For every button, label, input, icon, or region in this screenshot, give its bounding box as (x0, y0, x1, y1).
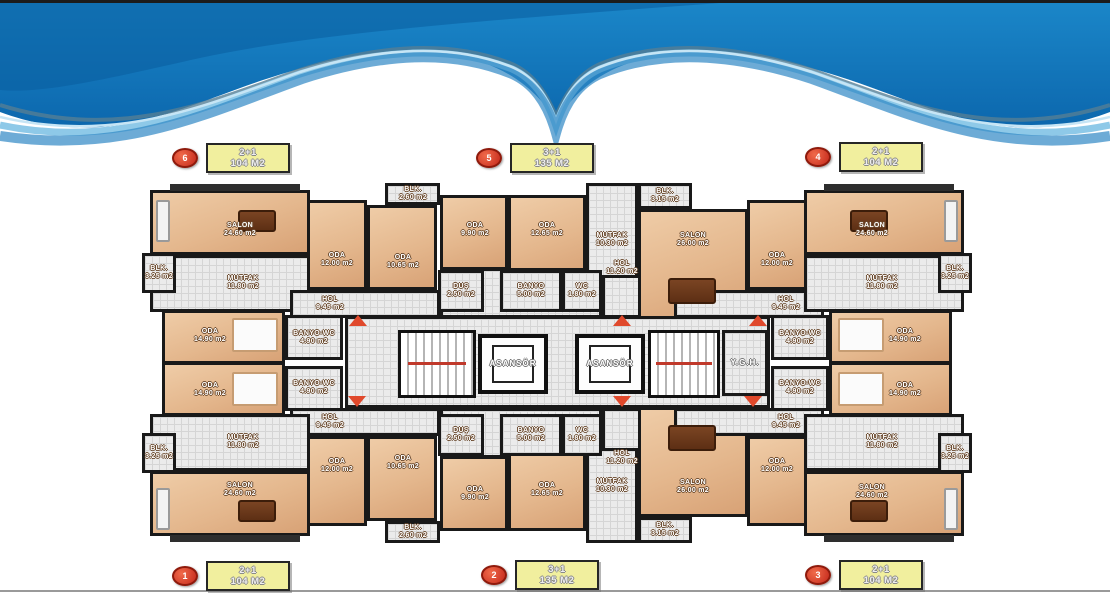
unit-number-badge: 4 (805, 147, 831, 167)
room-label: BANYO5.00 m2 (517, 283, 545, 299)
room-bedroom (747, 200, 807, 290)
unit-marker-2: 2 3+1135 M2 (481, 560, 599, 590)
room-label: MUTFAK11.80 m2 (227, 434, 259, 450)
entrance-arrow-icon (613, 315, 631, 326)
room-label: SALON24.60 m2 (856, 222, 888, 238)
furniture-sofa (944, 200, 958, 242)
floor-plan-page: SALON24.60 m2 MUTFAK11.80 m2 BLK.3.25 m2… (0, 0, 1110, 600)
room-label: BLK.3.25 m2 (941, 445, 969, 461)
entrance-arrow-icon (613, 396, 631, 407)
unit-tag: 3+1135 M2 (515, 560, 599, 590)
entrance-arrow-icon (348, 396, 366, 407)
unit-tag: 3+1135 M2 (510, 143, 594, 173)
room-label: SALON26.00 m2 (677, 479, 709, 495)
room-bedroom (307, 200, 367, 290)
room-label: DUŞ2.50 m2 (447, 427, 475, 443)
room-label: BLK.3.25 m2 (145, 265, 173, 281)
entrance-arrow-icon (744, 396, 762, 407)
terrace-strip (824, 184, 954, 191)
entrance-arrow-icon (749, 315, 767, 326)
room-label: BLK.3.15 m2 (651, 188, 679, 204)
elevator-label: ASANSÖR (586, 360, 633, 368)
room-label: BANYO-WC4.90 m2 (779, 380, 821, 396)
room-label: SALON24.60 m2 (224, 482, 256, 498)
room-label: BANYO-WC4.90 m2 (779, 330, 821, 346)
room-label: DUŞ2.50 m2 (447, 283, 475, 299)
room-label: MUTFAK10.30 m2 (596, 232, 628, 248)
room-label: WC1.80 m2 (568, 283, 596, 299)
stair-hall-label: Y.G.H. (730, 359, 759, 367)
bottom-divider-line (0, 590, 1110, 592)
room-label: HOL9.45 m2 (316, 296, 344, 312)
room-label: SALON26.00 m2 (677, 232, 709, 248)
room-label: ODA12.00 m2 (321, 252, 353, 268)
furniture-table (668, 278, 716, 304)
room-label: WC1.80 m2 (568, 427, 596, 443)
furniture-bed (232, 318, 278, 352)
unit-tag: 2+1104 M2 (206, 561, 290, 591)
room-label: HOL9.45 m2 (772, 296, 800, 312)
unit-marker-1: 1 2+1104 M2 (172, 561, 290, 591)
room-salon (150, 471, 310, 536)
room-label: ODA12.65 m2 (531, 482, 563, 498)
unit-number-badge: 6 (172, 148, 198, 168)
room-label: MUTFAK11.80 m2 (866, 275, 898, 291)
room-label: BLK.3.25 m2 (941, 265, 969, 281)
terrace-strip (824, 535, 954, 542)
room-label: BLK.2.60 m2 (399, 186, 427, 202)
furniture-bed (838, 318, 884, 352)
unit-number-badge: 1 (172, 566, 198, 586)
room-label: BLK.2.60 m2 (399, 524, 427, 540)
elevator-label: ASANSÖR (489, 360, 536, 368)
room-bedroom (747, 436, 807, 526)
furniture-table (668, 425, 716, 451)
room-label: HOL9.45 m2 (316, 414, 344, 430)
entrance-arrow-icon (349, 315, 367, 326)
furniture-bed (838, 372, 884, 406)
unit-marker-5: 5 3+1135 M2 (476, 143, 594, 173)
room-label: ODA10.65 m2 (387, 254, 419, 270)
room-label: ODA12.00 m2 (321, 458, 353, 474)
room-label: ODA12.00 m2 (761, 252, 793, 268)
room-label: HOL9.45 m2 (772, 414, 800, 430)
room-label: ODA14.90 m2 (194, 382, 226, 398)
blue-wave-banner (0, 0, 1110, 152)
unit-number-badge: 5 (476, 148, 502, 168)
room-label: ODA9.90 m2 (461, 486, 489, 502)
hallway (290, 290, 440, 318)
furniture-sofa (156, 488, 170, 530)
stair-rail (656, 362, 712, 365)
room-label: BLK.3.15 m2 (651, 522, 679, 538)
unit-marker-6: 6 2+1104 M2 (172, 143, 290, 173)
terrace-strip (170, 535, 300, 542)
room-label: SALON24.60 m2 (224, 222, 256, 238)
unit-tag: 2+1104 M2 (839, 560, 923, 590)
room-label: MUTFAK11.80 m2 (866, 434, 898, 450)
furniture-table (850, 500, 888, 522)
hallway (290, 408, 440, 436)
unit-tag: 2+1104 M2 (206, 143, 290, 173)
furniture-sofa (944, 488, 958, 530)
room-bedroom (367, 436, 437, 521)
furniture-table (238, 500, 276, 522)
room-label: MUTFAK10.30 m2 (596, 478, 628, 494)
furniture-bed (232, 372, 278, 406)
room-label: ODA14.90 m2 (194, 328, 226, 344)
room-label: MUTFAK11.80 m2 (227, 275, 259, 291)
stair-rail (408, 362, 466, 365)
room-label: HOL11.20 m2 (606, 260, 638, 276)
room-label: ODA9.90 m2 (461, 222, 489, 238)
room-label: SALON24.60 m2 (856, 484, 888, 500)
unit-marker-3: 3 2+1104 M2 (805, 560, 923, 590)
room-label: ODA14.90 m2 (889, 328, 921, 344)
room-label: BANYO-WC4.90 m2 (293, 330, 335, 346)
room-label: BANYO-WC4.90 m2 (293, 380, 335, 396)
unit-number-badge: 2 (481, 565, 507, 585)
room-bedroom (307, 436, 367, 526)
room-label: BANYO5.00 m2 (517, 427, 545, 443)
room-label: BLK.3.25 m2 (145, 445, 173, 461)
room-label: ODA12.00 m2 (761, 458, 793, 474)
unit-tag: 2+1104 M2 (839, 142, 923, 172)
room-label: HOL11.20 m2 (606, 450, 638, 466)
room-label: ODA12.65 m2 (531, 222, 563, 238)
unit-marker-4: 4 2+1104 M2 (805, 142, 923, 172)
unit-number-badge: 3 (805, 565, 831, 585)
terrace-strip (170, 184, 300, 191)
room-label: ODA14.90 m2 (889, 382, 921, 398)
room-label: ODA10.65 m2 (387, 455, 419, 471)
room-bedroom (367, 205, 437, 290)
furniture-sofa (156, 200, 170, 242)
